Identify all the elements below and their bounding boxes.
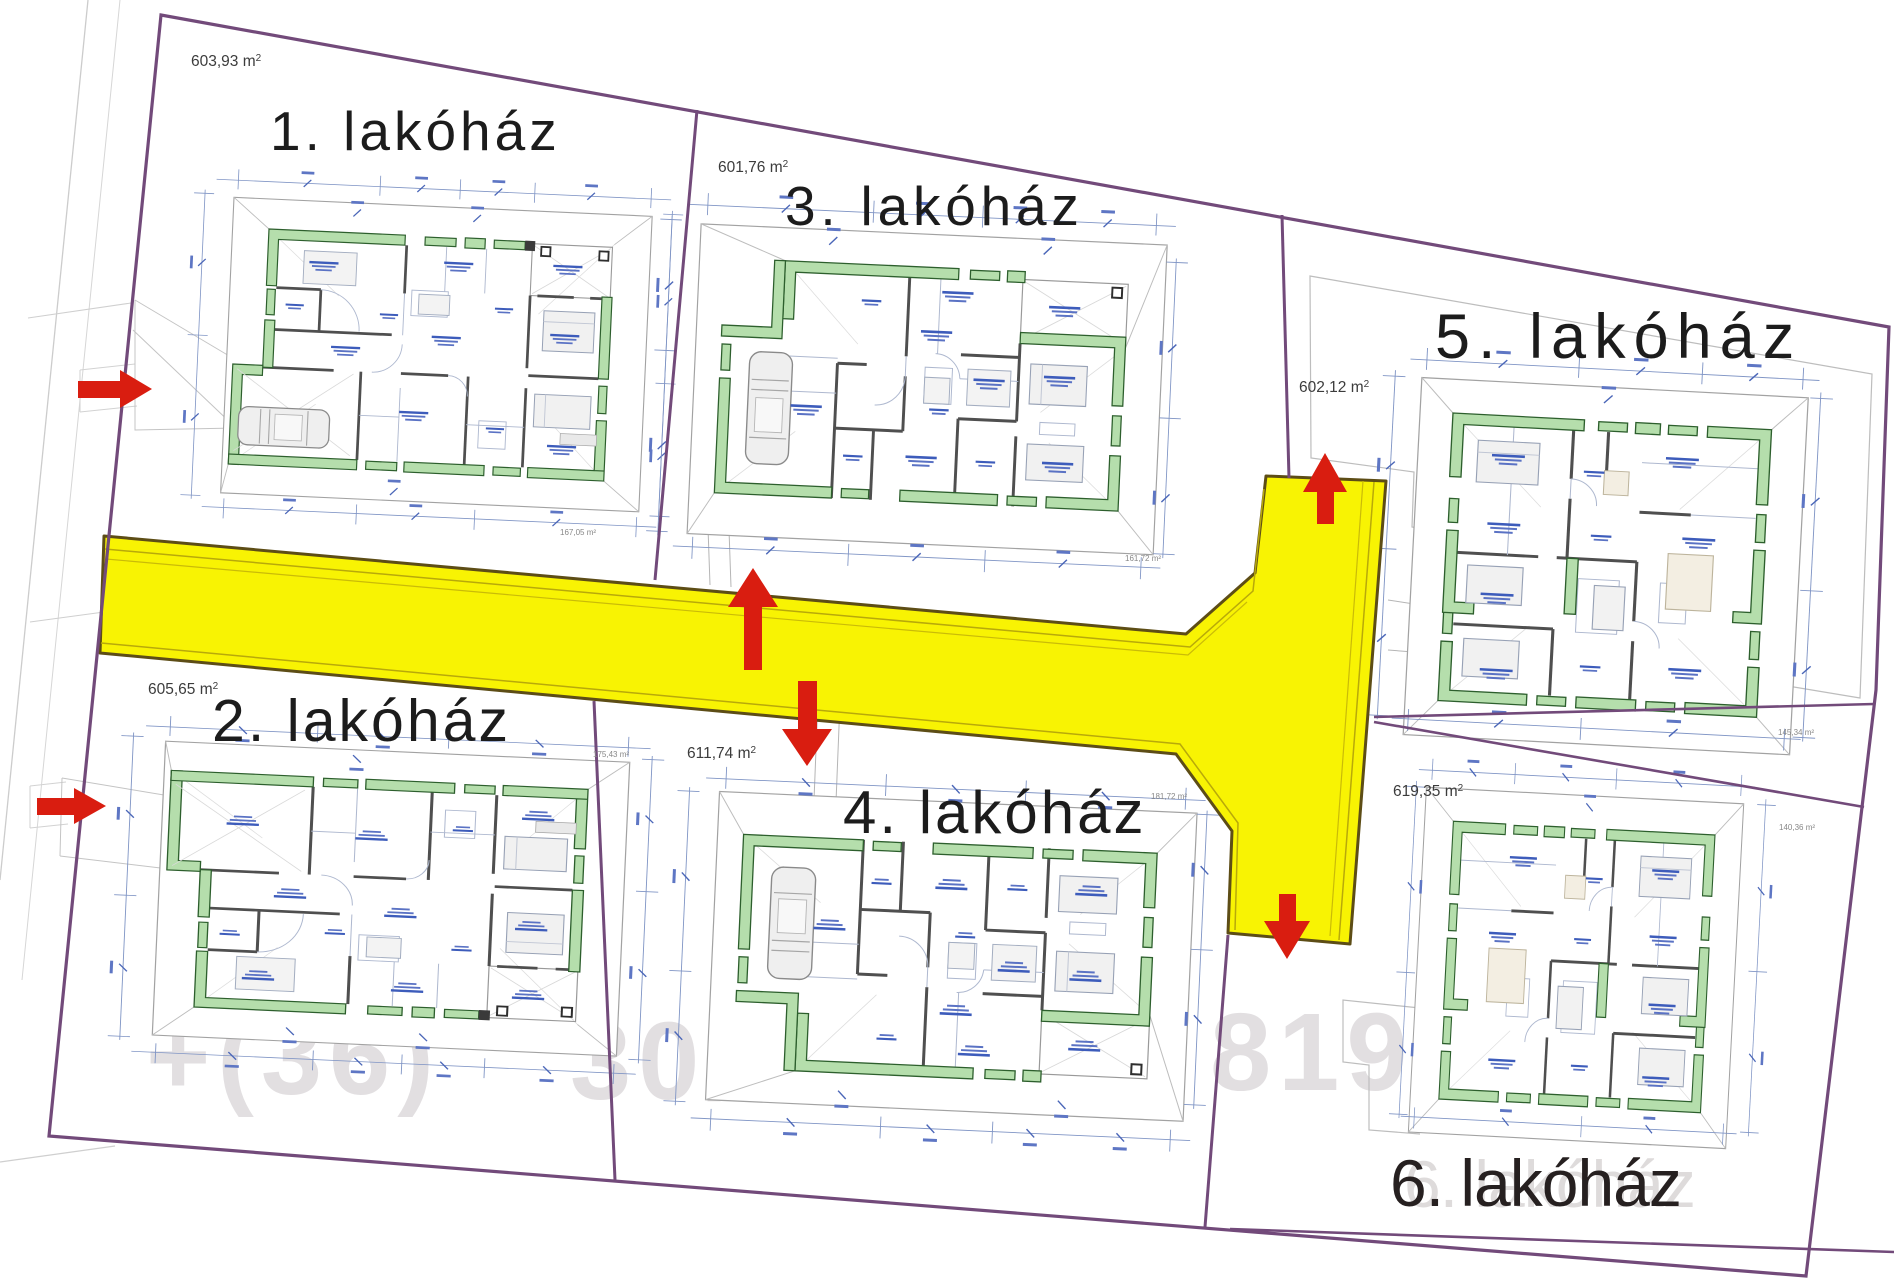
svg-text:161,72 m²: 161,72 m²	[1125, 554, 1161, 563]
svg-text:601,76 m2: 601,76 m2	[718, 159, 789, 176]
svg-text:167,05 m²: 167,05 m²	[560, 528, 596, 537]
svg-text:611,74 m2: 611,74 m2	[687, 745, 756, 762]
svg-text:181,72 m²: 181,72 m²	[1151, 792, 1187, 801]
svg-text:5. lakóház: 5. lakóház	[1435, 302, 1802, 372]
svg-text:1. lakóház: 1. lakóház	[270, 100, 561, 162]
svg-text:603,93 m2: 603,93 m2	[191, 53, 262, 70]
svg-text:3. lakóház: 3. lakóház	[785, 175, 1084, 237]
svg-text:602,12 m2: 602,12 m2	[1299, 379, 1370, 396]
svg-text:140,36 m²: 140,36 m²	[1779, 823, 1815, 832]
svg-text:4. lakóház: 4. lakóház	[843, 779, 1147, 846]
svg-text:2. lakóház: 2. lakóház	[212, 688, 511, 754]
svg-text:619,35 m2: 619,35 m2	[1393, 783, 1464, 800]
svg-text:145,34 m²: 145,34 m²	[1778, 728, 1814, 737]
svg-text:605,65 m2: 605,65 m2	[148, 681, 219, 698]
svg-text:6. lakóház: 6. lakóház	[1390, 1146, 1681, 1220]
svg-text:175,43 m²: 175,43 m²	[593, 750, 629, 759]
